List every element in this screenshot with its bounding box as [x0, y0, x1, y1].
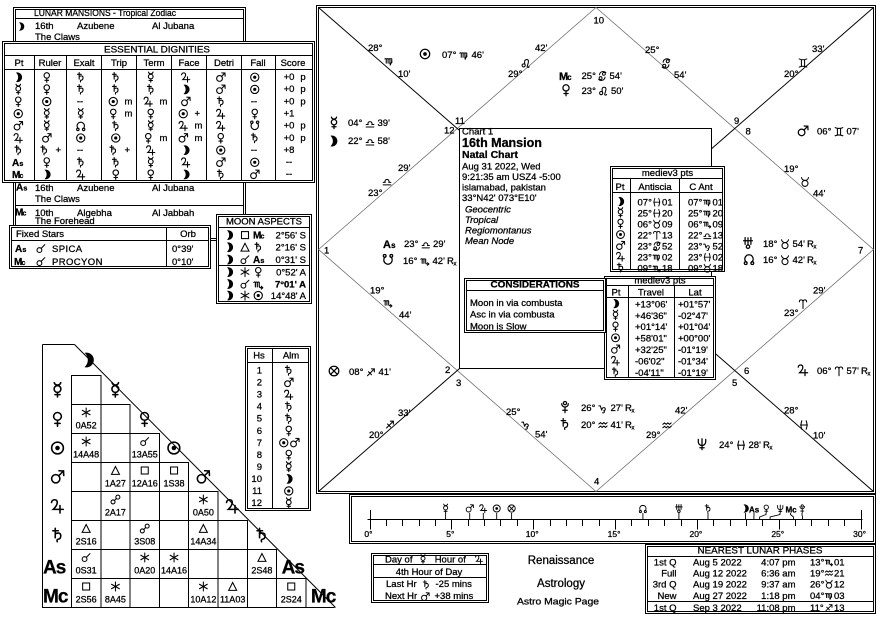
svg-text:09°: 09° [638, 263, 653, 274]
svg-text:16°: 16° [763, 255, 778, 266]
svg-text:02: 02 [662, 252, 673, 263]
svg-text:29': 29' [813, 286, 826, 297]
svg-text:A: A [253, 255, 260, 266]
svg-text:11:08 pm: 11:08 pm [757, 603, 796, 614]
svg-text:x: x [770, 446, 773, 452]
svg-text:-06'02": -06'02" [635, 356, 664, 367]
svg-text:+0: +0 [284, 96, 295, 107]
svg-text:--: -- [77, 96, 83, 107]
svg-text:23°: 23° [638, 241, 653, 252]
svg-text:01: 01 [834, 558, 845, 569]
svg-text:16th Mansion: 16th Mansion [462, 136, 542, 150]
svg-text:Azubene: Azubene [77, 183, 115, 194]
svg-text:13A55: 13A55 [132, 450, 158, 460]
svg-text:0°10': 0°10' [172, 257, 194, 268]
svg-text:54': 54' [793, 239, 806, 250]
svg-text:25°: 25° [582, 71, 597, 82]
svg-text:+00°00': +00°00' [678, 334, 710, 345]
svg-text:Al Jabbah: Al Jabbah [152, 208, 194, 219]
svg-text:11: 11 [455, 116, 465, 127]
svg-text:As: As [282, 558, 305, 579]
svg-text:18: 18 [662, 263, 673, 274]
svg-text:44': 44' [399, 310, 412, 321]
svg-text:0°39': 0°39' [172, 244, 194, 255]
svg-text:12: 12 [834, 580, 845, 591]
svg-text:SPICA: SPICA [52, 244, 83, 255]
svg-text:Moon in via combusta: Moon in via combusta [470, 298, 563, 309]
svg-text:+0: +0 [284, 121, 295, 132]
svg-text:3: 3 [257, 390, 262, 401]
svg-text:Tropical: Tropical [465, 215, 499, 226]
svg-text:Aug 27 2022: Aug 27 2022 [693, 591, 747, 602]
svg-text:16°: 16° [403, 256, 418, 267]
svg-text:Al Jubana: Al Jubana [152, 21, 195, 32]
svg-text:27': 27' [611, 403, 624, 414]
svg-text:13°: 13° [810, 558, 825, 569]
svg-text:islamabad, pakistan: islamabad, pakistan [462, 183, 546, 194]
svg-text:Pt: Pt [15, 58, 24, 69]
svg-text:10': 10' [398, 69, 411, 80]
svg-text:13: 13 [662, 230, 673, 241]
svg-text:Hour of: Hour of [435, 554, 467, 565]
svg-text:+: + [56, 145, 62, 156]
svg-text:-01°19': -01°19' [678, 345, 708, 356]
svg-text:26°: 26° [810, 580, 825, 591]
svg-text:06°: 06° [638, 219, 653, 230]
svg-text:m: m [160, 96, 168, 107]
svg-text:Next Hr: Next Hr [385, 591, 417, 602]
svg-text:-01°34': -01°34' [678, 356, 708, 367]
svg-text:0°31' S: 0°31' S [276, 255, 306, 266]
svg-text:52: 52 [662, 241, 673, 252]
svg-text:Astrology: Astrology [537, 578, 585, 590]
svg-text:+38 mins: +38 mins [435, 591, 474, 602]
svg-text:12A16: 12A16 [132, 479, 158, 489]
svg-text:As: As [43, 558, 66, 579]
svg-text:Day of: Day of [385, 554, 413, 565]
svg-text:--: -- [286, 169, 292, 180]
svg-text:1st Q: 1st Q [654, 558, 677, 569]
svg-text:3S08: 3S08 [134, 537, 155, 547]
svg-text:54': 54' [674, 70, 687, 81]
svg-text:07°: 07° [688, 197, 703, 208]
svg-text:mediev3 pts: mediev3 pts [642, 168, 693, 179]
svg-text:--: -- [251, 145, 257, 156]
svg-text:p: p [300, 72, 305, 83]
svg-text:Exalt: Exalt [73, 58, 94, 69]
svg-text:23°: 23° [582, 86, 597, 97]
svg-text:18°: 18° [763, 239, 778, 250]
svg-text:23°: 23° [638, 252, 653, 263]
svg-text:0A50: 0A50 [193, 508, 214, 518]
svg-text:14°48' A: 14°48' A [271, 291, 307, 302]
svg-text:23°: 23° [688, 241, 703, 252]
svg-text:p: p [300, 133, 305, 144]
svg-text:5°: 5° [446, 529, 454, 539]
svg-text:-25 mins: -25 mins [436, 579, 473, 590]
svg-text:c: c [22, 209, 26, 218]
svg-text:19°: 19° [784, 164, 799, 175]
svg-text:3: 3 [456, 378, 461, 389]
svg-text:29': 29' [398, 163, 411, 174]
svg-text:50': 50' [611, 86, 624, 97]
svg-text:A: A [15, 244, 22, 255]
svg-text:06°: 06° [817, 127, 832, 138]
svg-text:1st Q: 1st Q [654, 603, 677, 614]
svg-text:52: 52 [713, 241, 724, 252]
svg-text:2S16: 2S16 [76, 537, 97, 547]
svg-text:Mc: Mc [43, 587, 69, 608]
svg-text:x: x [868, 372, 871, 378]
svg-text:0A20: 0A20 [134, 566, 155, 576]
svg-text:6: 6 [744, 366, 749, 377]
svg-text:10: 10 [251, 474, 262, 485]
svg-text:54': 54' [610, 71, 623, 82]
svg-text:3rd Q: 3rd Q [653, 580, 677, 591]
svg-text:Pt: Pt [616, 182, 625, 193]
svg-text:28°: 28° [784, 406, 799, 417]
svg-text:16th: 16th [35, 183, 54, 194]
svg-text:+01°57': +01°57' [678, 299, 710, 310]
svg-text:ESSENTIAL DIGNITIES: ESSENTIAL DIGNITIES [104, 45, 210, 56]
svg-text:2S56: 2S56 [76, 595, 97, 605]
svg-text:29°: 29° [508, 69, 523, 80]
svg-text:Alm: Alm [283, 351, 299, 362]
svg-text:39': 39' [378, 118, 391, 129]
svg-text:20°: 20° [581, 420, 596, 431]
svg-text:01: 01 [713, 197, 724, 208]
svg-text:Geocentric: Geocentric [465, 205, 511, 216]
svg-text:04°: 04° [348, 118, 363, 129]
svg-text:+0: +0 [284, 133, 295, 144]
svg-text:+13°06': +13°06' [635, 299, 667, 310]
svg-text:Ruler: Ruler [39, 58, 62, 69]
svg-text:13: 13 [713, 230, 724, 241]
svg-text:A: A [12, 158, 19, 169]
svg-text:Orb: Orb [180, 229, 196, 240]
svg-text:s: s [23, 184, 27, 193]
svg-text:09: 09 [662, 219, 673, 230]
svg-text:As: As [749, 506, 760, 515]
svg-text:9: 9 [734, 116, 739, 127]
svg-text:09: 09 [713, 219, 724, 230]
svg-text:+1: +1 [284, 108, 295, 119]
svg-text:03: 03 [834, 591, 845, 602]
svg-text:7: 7 [858, 246, 863, 257]
svg-text:19°: 19° [370, 286, 385, 297]
svg-text:+01°14': +01°14' [635, 322, 667, 333]
svg-text:33': 33' [812, 44, 825, 55]
svg-text:21: 21 [834, 569, 845, 580]
svg-text:x: x [814, 261, 817, 267]
svg-text:9: 9 [257, 462, 262, 473]
svg-text:p: p [300, 96, 305, 107]
svg-text:--: -- [77, 145, 83, 156]
svg-text:16th: 16th [35, 21, 54, 32]
svg-text:25°: 25° [506, 407, 521, 418]
svg-text:23°: 23° [368, 188, 383, 199]
svg-text:C Ant: C Ant [689, 182, 713, 193]
svg-text:2A17: 2A17 [105, 508, 126, 518]
svg-text:42': 42' [433, 256, 446, 267]
svg-text:x: x [632, 426, 635, 432]
svg-text:7: 7 [257, 438, 262, 449]
svg-text:c: c [260, 231, 264, 240]
svg-text:Detri: Detri [214, 58, 234, 69]
svg-text:p: p [300, 121, 305, 132]
svg-text:6: 6 [257, 426, 262, 437]
svg-text:A: A [16, 183, 23, 194]
svg-text:9:21:35 am USZ4 -5:00: 9:21:35 am USZ4 -5:00 [462, 172, 561, 183]
svg-text:+32'25": +32'25" [635, 345, 667, 356]
svg-text:14A34: 14A34 [190, 537, 216, 547]
svg-text:2°56' S: 2°56' S [276, 230, 306, 241]
svg-text:10°: 10° [526, 529, 539, 539]
svg-text:Score: Score [281, 58, 306, 69]
svg-text:2°16' S: 2°16' S [276, 243, 306, 254]
svg-text:c: c [21, 258, 25, 267]
svg-text:15°: 15° [608, 529, 621, 539]
svg-text:30°: 30° [853, 529, 866, 539]
svg-text:x: x [814, 245, 817, 251]
svg-text:14A48: 14A48 [73, 450, 99, 460]
svg-text:Aug 12 2022: Aug 12 2022 [693, 569, 747, 580]
svg-text:46': 46' [472, 50, 485, 61]
svg-text:10': 10' [813, 431, 826, 442]
svg-text:28°: 28° [368, 43, 383, 54]
svg-text:7°01' A: 7°01' A [275, 279, 306, 290]
svg-text:23°: 23° [688, 252, 703, 263]
svg-text:--: -- [286, 157, 292, 168]
svg-text:Hs: Hs [253, 351, 265, 362]
svg-text:33°N42' 073°E10': 33°N42' 073°E10' [462, 193, 537, 204]
svg-text:CONSIDERATIONS: CONSIDERATIONS [491, 280, 580, 291]
svg-text:29°: 29° [646, 430, 661, 441]
svg-text:58': 58' [378, 136, 391, 147]
svg-text:Pt: Pt [612, 288, 621, 299]
svg-text:13: 13 [834, 603, 845, 614]
svg-text:22°: 22° [688, 230, 703, 241]
svg-text:44': 44' [813, 189, 826, 200]
svg-text:04°: 04° [810, 591, 825, 602]
svg-text:4th Hour of Day: 4th Hour of Day [396, 567, 463, 578]
svg-text:23°: 23° [784, 308, 799, 319]
svg-text:Sep 3 2022: Sep 3 2022 [693, 603, 742, 614]
svg-text:4: 4 [257, 402, 262, 413]
svg-text:12: 12 [251, 498, 262, 509]
svg-text:The Claws: The Claws [35, 194, 80, 205]
svg-text:+0: +0 [284, 72, 295, 83]
svg-text:33': 33' [398, 408, 411, 419]
svg-text:6:36 am: 6:36 am [761, 569, 795, 580]
svg-text:s: s [391, 241, 396, 250]
svg-text:42': 42' [793, 255, 806, 266]
svg-text:09°: 09° [688, 263, 703, 274]
svg-text:07': 07' [847, 127, 860, 138]
svg-text:Astro Magic Page: Astro Magic Page [517, 597, 599, 608]
svg-text:08°: 08° [349, 367, 364, 378]
svg-text:0A52: 0A52 [76, 421, 97, 431]
svg-text:LUNAR MANSIONS - Tropical Zodi: LUNAR MANSIONS - Tropical Zodiac [34, 8, 176, 19]
svg-text:c: c [19, 171, 23, 180]
svg-text:Full: Full [661, 569, 676, 580]
svg-text:Aug 31 2022, Wed: Aug 31 2022, Wed [462, 162, 541, 173]
svg-text:29': 29' [433, 239, 446, 250]
svg-text:5: 5 [732, 378, 737, 389]
svg-text:--: -- [251, 96, 257, 107]
svg-text:+: + [125, 145, 131, 156]
svg-text:Term: Term [143, 58, 164, 69]
svg-text:25°: 25° [638, 208, 653, 219]
svg-text:Antiscia: Antiscia [638, 182, 672, 193]
svg-text:18: 18 [713, 263, 724, 274]
svg-text:+01°04': +01°04' [678, 322, 710, 333]
svg-text:9:37 am: 9:37 am [761, 580, 795, 591]
svg-text:PROCYON: PROCYON [52, 257, 103, 268]
svg-text:24°: 24° [719, 440, 734, 451]
svg-text:0S31: 0S31 [76, 566, 97, 576]
svg-text:s: s [19, 159, 23, 168]
svg-text:Aug 19 2022: Aug 19 2022 [693, 580, 747, 591]
svg-text:+8: +8 [284, 145, 295, 156]
svg-text:s: s [260, 256, 264, 265]
svg-text:x: x [632, 409, 635, 415]
svg-text:1S38: 1S38 [164, 479, 185, 489]
svg-text:Fall: Fall [250, 58, 265, 69]
svg-text:02: 02 [713, 252, 724, 263]
svg-text:5: 5 [257, 414, 262, 425]
svg-text:Asc in via combusta: Asc in via combusta [470, 310, 555, 321]
svg-text:42': 42' [675, 406, 688, 417]
svg-text:m: m [160, 133, 168, 144]
svg-text:23°: 23° [404, 239, 419, 250]
svg-text:+58'01": +58'01" [635, 334, 667, 345]
svg-text:4: 4 [594, 477, 599, 488]
svg-text:Aug 5 2022: Aug 5 2022 [693, 558, 742, 569]
svg-text:28': 28' [749, 440, 762, 451]
svg-text:41': 41' [611, 420, 624, 431]
svg-text:m: m [195, 133, 203, 144]
svg-text:8: 8 [746, 127, 751, 138]
svg-text:Face: Face [178, 58, 199, 69]
svg-text:mediev3 pts: mediev3 pts [634, 276, 685, 287]
svg-text:22°: 22° [638, 230, 653, 241]
svg-text:11A03: 11A03 [220, 595, 245, 605]
svg-text:2S48: 2S48 [251, 566, 272, 576]
svg-text:11°: 11° [810, 603, 824, 614]
svg-text:+46'36": +46'36" [635, 311, 667, 322]
svg-text:10: 10 [594, 16, 605, 27]
svg-text:1:18 pm: 1:18 pm [761, 591, 795, 602]
svg-text:Trip: Trip [111, 58, 127, 69]
svg-text:m: m [125, 96, 133, 107]
svg-text:x: x [454, 262, 457, 268]
svg-text:20: 20 [662, 208, 673, 219]
svg-text:26°: 26° [581, 403, 596, 414]
svg-text:1: 1 [257, 366, 262, 377]
svg-text:+: + [195, 108, 201, 119]
svg-text:Renaissance: Renaissance [528, 555, 594, 567]
svg-text:-04'11": -04'11" [635, 368, 664, 379]
svg-text:Regiomontanus: Regiomontanus [465, 226, 532, 237]
svg-text:Lat: Lat [688, 288, 702, 299]
svg-text:42': 42' [535, 43, 548, 54]
svg-text:07°: 07° [442, 50, 457, 61]
svg-text:2: 2 [257, 378, 262, 389]
svg-text:25°: 25° [688, 208, 703, 219]
svg-text:s: s [22, 245, 26, 254]
svg-text:19°: 19° [810, 569, 825, 580]
svg-text:10A12: 10A12 [190, 595, 216, 605]
svg-text:22°: 22° [348, 136, 363, 147]
svg-text:1A27: 1A27 [105, 479, 126, 489]
svg-text:Mc: Mc [786, 506, 798, 515]
svg-text:Fixed Stars: Fixed Stars [16, 229, 64, 240]
svg-text:8A45: 8A45 [105, 595, 126, 605]
svg-text:-02°47': -02°47' [678, 311, 708, 322]
svg-text:0°52' A: 0°52' A [276, 267, 307, 278]
svg-text:Last Hr: Last Hr [386, 579, 417, 590]
svg-text:Al Jubana: Al Jubana [152, 183, 195, 194]
svg-text:4:07 pm: 4:07 pm [761, 558, 795, 569]
svg-text:2S24: 2S24 [281, 595, 302, 605]
svg-text:41': 41' [379, 367, 392, 378]
svg-text:06°: 06° [688, 219, 703, 230]
svg-text:20: 20 [713, 208, 724, 219]
svg-text:20°: 20° [689, 529, 702, 539]
svg-text:11: 11 [252, 486, 262, 497]
svg-text:20°: 20° [784, 69, 799, 80]
svg-text:54': 54' [535, 430, 548, 441]
svg-text:14A16: 14A16 [161, 566, 187, 576]
svg-text:25°: 25° [645, 45, 660, 56]
svg-text:12: 12 [444, 126, 455, 137]
svg-text:-01°19': -01°19' [678, 368, 708, 379]
svg-text:57': 57' [847, 366, 860, 377]
svg-text:NEAREST LUNAR PHASES: NEAREST LUNAR PHASES [698, 546, 823, 557]
svg-text:m: m [125, 108, 133, 119]
svg-text:A: A [383, 239, 391, 251]
svg-text:20°: 20° [369, 430, 384, 441]
svg-text:Mean Node: Mean Node [465, 236, 514, 247]
svg-text:25°: 25° [771, 529, 784, 539]
svg-text:p: p [300, 84, 305, 95]
svg-text:+0: +0 [284, 84, 295, 95]
svg-text:Natal Chart: Natal Chart [462, 149, 519, 161]
svg-text:01: 01 [662, 197, 673, 208]
svg-text:New: New [657, 591, 676, 602]
svg-text:MOON ASPECTS: MOON ASPECTS [226, 217, 302, 228]
svg-text:1: 1 [324, 246, 329, 257]
svg-text:06°: 06° [817, 366, 832, 377]
svg-text:m: m [195, 121, 203, 132]
svg-text:8: 8 [257, 450, 262, 461]
svg-text:Moon is Slow: Moon is Slow [470, 321, 527, 332]
svg-text:Travel: Travel [638, 288, 664, 299]
svg-text:2: 2 [445, 365, 450, 376]
svg-text:c: c [567, 73, 572, 82]
svg-text:Mc: Mc [311, 587, 337, 608]
svg-text:0°: 0° [364, 529, 372, 539]
svg-text:07°: 07° [638, 197, 653, 208]
svg-text:Azubene: Azubene [77, 21, 115, 32]
